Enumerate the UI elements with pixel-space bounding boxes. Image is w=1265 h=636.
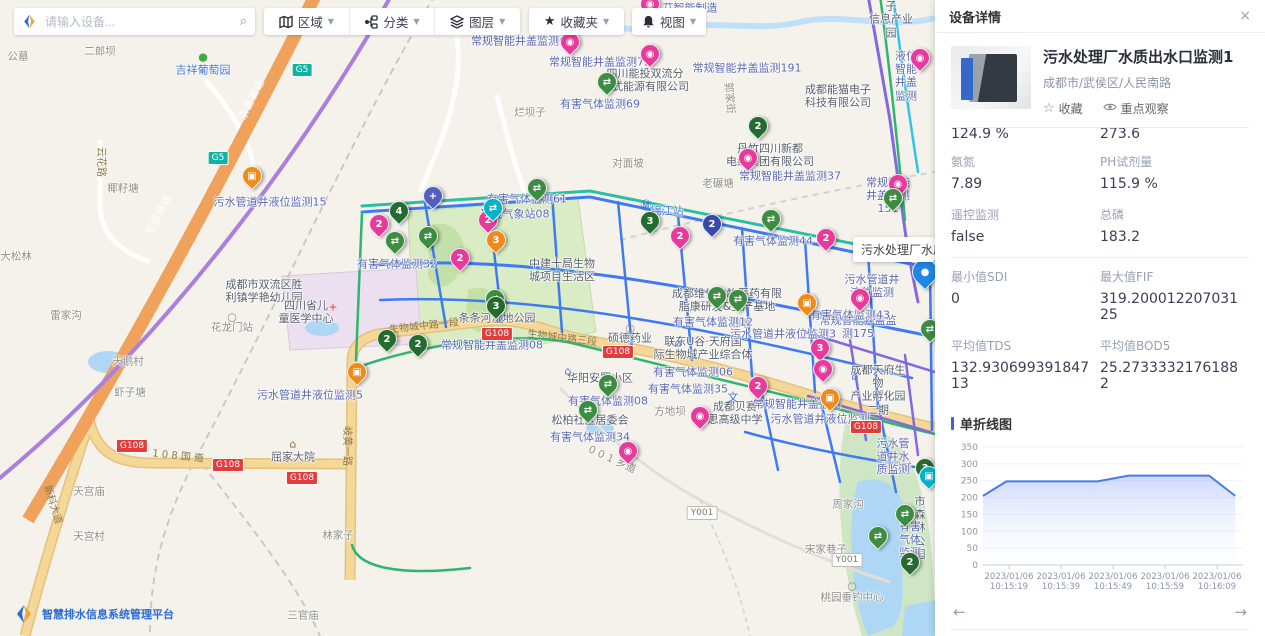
svg-text:2023/01/06: 2023/01/06 <box>985 572 1034 582</box>
road-g108 <box>25 321 935 636</box>
svg-text:2023/01/06: 2023/01/06 <box>1037 572 1086 582</box>
map-icon <box>279 15 293 29</box>
basemap-graphics <box>0 0 935 636</box>
classify-button[interactable]: 分类▼ <box>349 8 435 35</box>
brand-logo-icon <box>14 604 34 624</box>
chevron-down-icon: ▼ <box>499 17 505 26</box>
eye-icon <box>1103 101 1117 116</box>
device-search-box[interactable]: ⌕ <box>14 8 255 35</box>
svg-text:10:16:09: 10:16:09 <box>1198 582 1236 592</box>
region-button[interactable]: 区域▼ <box>264 8 349 35</box>
star-icon: ★ <box>544 14 556 29</box>
svg-text:300: 300 <box>961 460 978 470</box>
bottom-stats-grid: 最小值TP0 平均值TN211.67086796367002 最大值CHR <box>951 630 1249 636</box>
hospital-block-area <box>282 268 421 350</box>
section-bar-icon <box>951 417 954 430</box>
favorite-action[interactable]: ☆ 收藏 <box>1043 100 1083 117</box>
svg-text:10:15:39: 10:15:39 <box>1042 582 1080 592</box>
device-image <box>951 46 1031 109</box>
selected-device-tooltip[interactable]: 污水处理厂水质出水口监测1 <box>853 237 935 262</box>
chart-prev-button[interactable]: ← <box>953 603 966 621</box>
device-location: 成都市/武侯区/人民南路 <box>1043 74 1233 91</box>
svg-text:50: 50 <box>967 544 979 554</box>
star-outline-icon: ☆ <box>1043 101 1055 116</box>
readings-grid: 氨氮7.89 PH试剂量115.9 % 遥控监测false 总磷183.2 <box>951 143 1249 257</box>
close-icon[interactable]: × <box>1239 8 1251 24</box>
panel-title: 设备详情 <box>949 7 1001 26</box>
partial-value-left: 124.9 % <box>951 128 1100 143</box>
classify-icon <box>364 15 378 29</box>
favorites-button[interactable]: ★ 收藏夹▼ <box>529 8 624 35</box>
partial-value-right: 273.6 <box>1100 128 1249 143</box>
svg-text:100: 100 <box>961 527 978 537</box>
line-chart: 0501001502002503003502023/01/0610:15:192… <box>951 437 1249 601</box>
svg-text:150: 150 <box>961 510 978 520</box>
svg-text:10:15:49: 10:15:49 <box>1094 582 1132 592</box>
svg-text:250: 250 <box>961 477 978 487</box>
chart-section-title: 单折线图 <box>951 404 1249 437</box>
chevron-down-icon: ▼ <box>690 17 696 26</box>
brand-logo-icon <box>22 14 37 29</box>
highway-g5 <box>28 0 316 520</box>
bell-icon <box>642 15 655 28</box>
chart-next-button[interactable]: → <box>1234 603 1247 621</box>
device-card: 污水处理厂水质出水口监测1 成都市/武侯区/人民南路 ☆ 收藏 重点观察 <box>951 33 1249 127</box>
platform-logo: 智慧排水信息系统管理平台 <box>14 604 174 624</box>
svg-text:200: 200 <box>961 494 978 504</box>
partial-values-row: 124.9 % 273.6 <box>951 128 1249 143</box>
svg-text:350: 350 <box>961 443 978 453</box>
layers-icon <box>450 15 464 29</box>
svg-text:2023/01/06: 2023/01/06 <box>1141 572 1190 582</box>
view-button[interactable]: 视图▼ <box>632 8 706 35</box>
svg-text:0: 0 <box>972 561 978 571</box>
svg-text:10:15:59: 10:15:59 <box>1146 582 1184 592</box>
platform-name: 智慧排水信息系统管理平台 <box>42 606 174 622</box>
stats-grid: 最小值SDI0 最大值FIF319.20001220703125 平均值TDS1… <box>951 258 1249 404</box>
map-viewport[interactable]: 公墓二郎坝吉祥葡萄园大松林雷家沟天鹅村虾子塘椰籽塘天宫庙天宫村三官庙林家子对面坡… <box>0 0 935 636</box>
device-detail-panel: 设备详情 × 污水处理厂水质出水口监测1 成都市/武侯区/人民南路 ☆ 收藏 <box>935 0 1265 636</box>
chevron-down-icon: ▼ <box>328 17 334 26</box>
search-icon[interactable]: ⌕ <box>240 14 247 29</box>
chevron-down-icon: ▼ <box>413 17 419 26</box>
layers-button[interactable]: 图层▼ <box>434 8 520 35</box>
svg-text:2023/01/06: 2023/01/06 <box>1193 572 1242 582</box>
chevron-down-icon: ▼ <box>603 17 609 26</box>
svg-text:10:15:19: 10:15:19 <box>990 582 1028 592</box>
purple-road <box>0 0 392 482</box>
svg-text:2023/01/06: 2023/01/06 <box>1089 572 1138 582</box>
device-name: 污水处理厂水质出水口监测1 <box>1043 46 1233 67</box>
search-input[interactable] <box>45 15 240 29</box>
watch-action[interactable]: 重点观察 <box>1103 100 1169 117</box>
